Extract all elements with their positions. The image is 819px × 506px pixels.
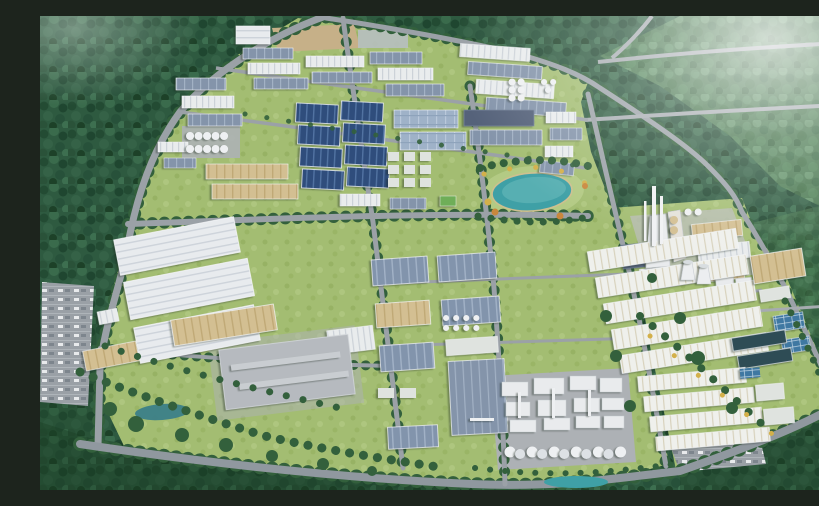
tree-clump <box>674 312 686 324</box>
cube-unit <box>378 388 394 398</box>
blue-roof-hall <box>302 169 345 190</box>
plant-stack <box>552 388 555 418</box>
scene-svg <box>40 16 819 490</box>
cube-unit <box>404 165 415 174</box>
cube-unit <box>404 152 415 161</box>
glass-hall <box>400 132 466 150</box>
factory <box>306 56 364 67</box>
mist-topright <box>460 16 819 296</box>
pond-south <box>544 476 608 488</box>
plant-structure <box>574 398 600 412</box>
factory <box>340 194 380 206</box>
cube-unit <box>404 178 415 187</box>
factory <box>378 68 433 80</box>
cube-unit <box>420 165 431 174</box>
tree-clump <box>600 310 612 322</box>
cube-unit <box>388 178 399 187</box>
factory <box>236 26 270 44</box>
factory <box>254 78 308 89</box>
tree-clump <box>691 351 705 365</box>
factory <box>390 198 426 209</box>
ribbed-long-hall <box>448 359 508 436</box>
tree-clump <box>610 350 622 362</box>
tree-clump <box>219 438 233 452</box>
plant-structure <box>544 418 570 430</box>
tank-farm-pad <box>182 126 240 158</box>
plant-structure <box>570 376 596 390</box>
blue-roof-hall <box>296 103 339 124</box>
plant-structure <box>604 416 624 428</box>
cube-unit <box>388 165 399 174</box>
gabled-hall <box>387 425 438 450</box>
plant-structure <box>502 382 528 396</box>
tree-clump <box>367 466 377 476</box>
blue-roof-hall <box>300 147 343 168</box>
plant-structure <box>510 420 536 432</box>
tan-workshop <box>212 184 298 199</box>
factory <box>164 158 196 168</box>
pipe-bridge <box>470 418 494 421</box>
blue-roof-hall <box>347 167 390 188</box>
gabled-hall <box>379 342 435 372</box>
sports-court <box>440 196 456 206</box>
cube-unit <box>420 178 431 187</box>
factory <box>386 84 444 96</box>
factory <box>312 72 372 83</box>
plant-structure <box>600 378 622 392</box>
gabled-hall <box>441 296 501 326</box>
tree-clump <box>128 416 144 432</box>
tree-clump <box>726 402 738 414</box>
plant-structure <box>576 416 600 428</box>
factory <box>158 142 188 152</box>
glass-hall <box>394 110 458 128</box>
tree-clump <box>103 402 117 416</box>
plant-stack <box>588 390 591 416</box>
cube-unit <box>446 336 499 356</box>
factory <box>370 52 422 64</box>
plant-structure <box>534 378 564 394</box>
cube-unit <box>400 388 416 398</box>
blue-roof-hall <box>343 123 386 144</box>
tan-hall <box>375 300 431 328</box>
tree-clump <box>317 458 329 470</box>
parking-lot-left <box>40 282 94 406</box>
plant-structure <box>602 398 624 410</box>
cube-unit <box>420 152 431 161</box>
tree-clump <box>266 450 278 462</box>
blue-roof-hall <box>341 101 384 122</box>
mist-topleft <box>40 16 200 116</box>
factory <box>248 63 300 74</box>
tree-clump <box>624 400 636 412</box>
solar-panel <box>740 367 761 379</box>
tan-workshop <box>206 164 288 179</box>
gabled-hall <box>371 256 429 286</box>
factory <box>243 48 293 59</box>
plant-stack <box>518 392 521 418</box>
tree-clump <box>175 428 189 442</box>
industrial-park-aerial-rendering <box>40 16 819 490</box>
cube-unit <box>755 383 784 401</box>
blue-roof-hall <box>345 145 388 166</box>
cube-unit <box>763 407 794 426</box>
cube-unit <box>388 152 399 161</box>
